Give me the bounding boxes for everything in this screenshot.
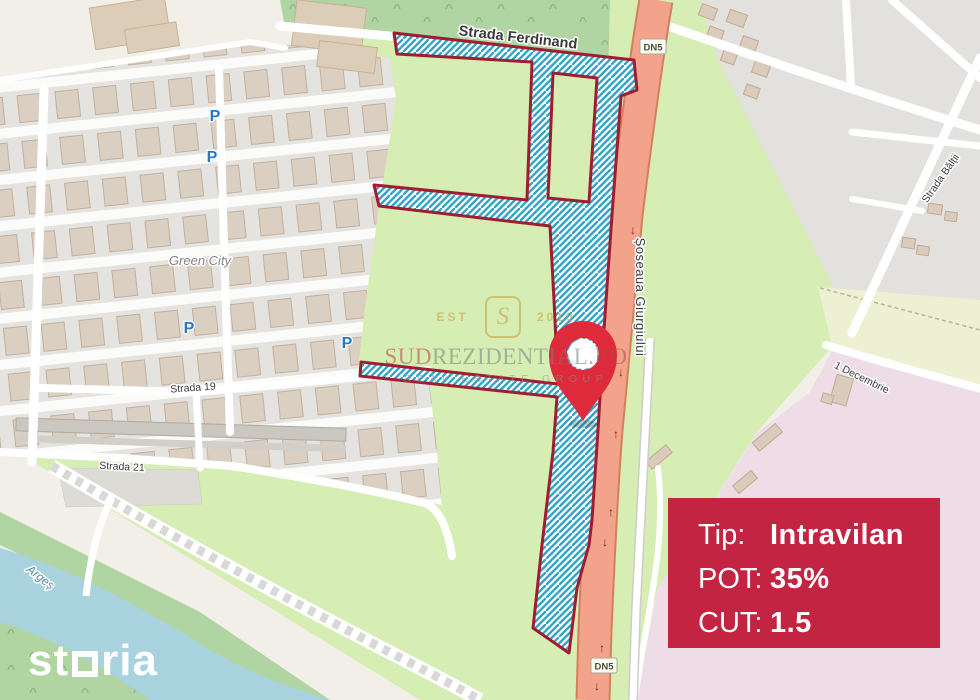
zoning-row-tip: Tip:Intravilan — [698, 513, 940, 557]
map-screenshot[interactable]: ↓ ↓ ↑ ↑ ↓ ↑ ↓ Strada Ferdinand Șoseaua G… — [0, 0, 980, 700]
parking-icon: P — [210, 108, 221, 125]
svg-text:↑: ↑ — [599, 641, 605, 655]
label-strada21: Strada 21 — [99, 460, 145, 474]
zoning-row-pot: POT:35% — [698, 557, 940, 601]
svg-text:↓: ↓ — [594, 679, 600, 693]
dn5-badge: DN5 — [640, 39, 666, 54]
label-green-city: Green City — [169, 253, 233, 268]
zoning-info-card: Tip:Intravilan POT:35% CUT:1.5 — [668, 498, 940, 648]
zoning-row-cut: CUT:1.5 — [698, 601, 940, 645]
parking-icon: P — [207, 149, 218, 166]
svg-text:↑: ↑ — [613, 427, 619, 441]
parking-icon: P — [342, 335, 353, 352]
svg-text:↓: ↓ — [630, 223, 636, 237]
svg-text:↓: ↓ — [618, 365, 624, 379]
storia-square-o-icon — [72, 651, 98, 677]
label-giurgiului: Șoseaua Giurgiului — [633, 238, 648, 357]
svg-text:DN5: DN5 — [594, 662, 614, 673]
svg-text:DN5: DN5 — [643, 43, 663, 54]
dn5-badge: DN5 — [591, 658, 617, 673]
storia-logo: stria — [28, 636, 158, 686]
svg-text:↓: ↓ — [602, 535, 608, 549]
parking-icon: P — [184, 320, 195, 337]
svg-text:↑: ↑ — [608, 505, 614, 519]
